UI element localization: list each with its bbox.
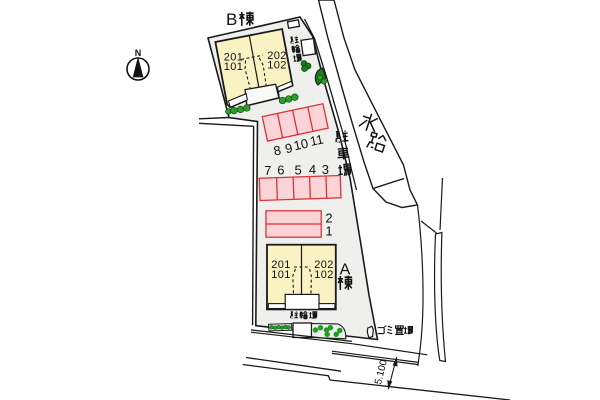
svg-text:1: 1 — [325, 224, 332, 239]
svg-text:102: 102 — [267, 60, 287, 72]
svg-text:N: N — [135, 48, 142, 58]
svg-text:7: 7 — [264, 163, 271, 178]
svg-text:6: 6 — [277, 163, 284, 178]
svg-text:4: 4 — [309, 162, 316, 177]
svg-text:102: 102 — [314, 269, 334, 281]
svg-text:5: 5 — [294, 162, 301, 177]
svg-text:101: 101 — [224, 61, 244, 73]
svg-text:3: 3 — [322, 162, 329, 177]
svg-text:B: B — [226, 10, 237, 29]
svg-text:10: 10 — [292, 136, 309, 154]
svg-text:101: 101 — [271, 269, 291, 281]
